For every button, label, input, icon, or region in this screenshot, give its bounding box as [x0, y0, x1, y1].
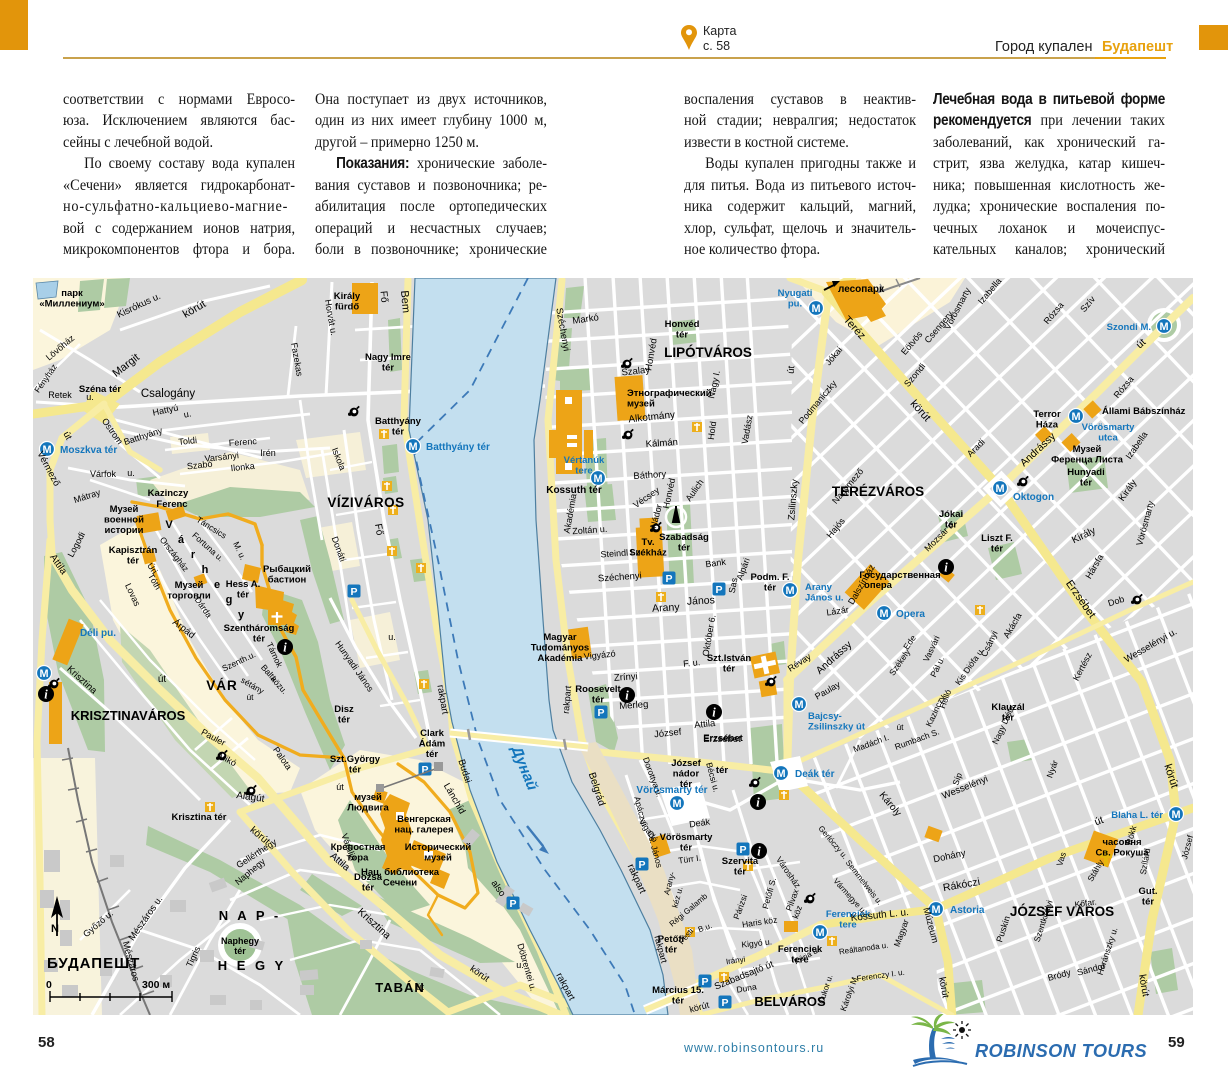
svg-text:музей: музей: [424, 853, 452, 864]
svg-text:Hunyadi: Hunyadi: [1067, 467, 1104, 478]
svg-text:Bajcsy-: Bajcsy-: [808, 711, 842, 722]
svg-text:Szt.István: Szt.István: [707, 653, 752, 664]
svg-text:JÓZSEF VÁROS: JÓZSEF VÁROS: [1010, 904, 1114, 919]
svg-text:Opera: Opera: [896, 609, 925, 620]
svg-text:M: M: [815, 927, 824, 939]
svg-text:0: 0: [46, 979, 52, 991]
svg-text:Gut.: Gut.: [1139, 886, 1158, 897]
svg-text:«Миллениум»: «Миллениум»: [39, 299, 104, 310]
svg-text:Terror: Terror: [1033, 409, 1061, 420]
svg-text:M: M: [39, 668, 48, 680]
svg-text:tér: tér: [382, 363, 394, 374]
svg-text:e: e: [214, 579, 220, 591]
svg-text:tér: tér: [253, 634, 265, 645]
svg-text:Vörösmarty tér: Vörösmarty tér: [636, 785, 707, 796]
svg-text:Báthory: Báthory: [633, 469, 667, 482]
svg-text:út: út: [246, 692, 254, 702]
svg-text:Сечени: Сечени: [383, 878, 417, 889]
svg-text:Attila: Attila: [694, 718, 717, 731]
svg-text:Háza: Háza: [1036, 420, 1059, 431]
svg-text:Astoria: Astoria: [950, 905, 985, 916]
svg-text:M: M: [1071, 411, 1080, 423]
svg-text:Szentháromság: Szentháromság: [224, 623, 295, 634]
svg-text:u.: u.: [127, 468, 135, 478]
svg-text:Retek: Retek: [48, 390, 72, 400]
svg-text:M: M: [879, 608, 888, 620]
svg-text:VÁR: VÁR: [206, 678, 238, 693]
svg-text:János u.: János u.: [805, 593, 844, 604]
svg-text:Ádám: Ádám: [419, 739, 445, 750]
svg-text:Kazinczy: Kazinczy: [148, 488, 189, 499]
svg-text:музей: музей: [354, 792, 382, 803]
svg-text:M: M: [1171, 809, 1180, 821]
svg-text:P: P: [721, 997, 728, 1009]
svg-text:P: P: [715, 584, 722, 596]
svg-text:P: P: [597, 707, 604, 719]
svg-text:Szt.György: Szt.György: [330, 754, 381, 765]
svg-text:N A P -: N A P -: [219, 908, 281, 923]
svg-text:V: V: [165, 519, 173, 531]
svg-text:Magyar: Magyar: [543, 632, 577, 643]
svg-text:Blaha L. tér: Blaha L. tér: [1111, 810, 1163, 821]
svg-text:út: út: [158, 674, 167, 685]
svg-text:Csalogány: Csalogány: [141, 388, 196, 400]
svg-text:y: y: [238, 609, 245, 621]
svg-text:Ferenc: Ferenc: [228, 436, 257, 448]
svg-text:János: János: [687, 594, 716, 607]
svg-text:Állami Bábszínház: Állami Bábszínház: [1102, 406, 1186, 417]
svg-text:истории: истории: [105, 525, 144, 536]
svg-text:tere: tere: [575, 466, 592, 477]
svg-text:Podm. F.: Podm. F.: [750, 572, 789, 583]
svg-text:Ференца Листа: Ференца Листа: [1051, 455, 1124, 466]
svg-text:Этнографический: Этнографический: [627, 388, 712, 399]
svg-text:tér: tér: [592, 695, 604, 706]
svg-text:M: M: [995, 483, 1004, 495]
svg-text:út: út: [416, 982, 424, 993]
svg-text:M: M: [776, 768, 785, 780]
svg-text:Oktogon: Oktogon: [1013, 492, 1054, 503]
svg-text:Akadémia: Akadémia: [538, 653, 584, 664]
svg-text:tér: tér: [234, 946, 246, 956]
svg-text:pu.: pu.: [788, 299, 802, 310]
svg-text:tér: tér: [1142, 897, 1154, 908]
svg-text:á: á: [178, 534, 185, 546]
svg-text:Исторический: Исторический: [405, 842, 472, 853]
svg-text:út: út: [786, 365, 798, 374]
svg-text:Nyugati: Nyugati: [778, 288, 813, 299]
svg-text:бастион: бастион: [268, 575, 307, 586]
svg-text:F. u.: F. u.: [683, 657, 701, 669]
svg-text:u.: u.: [516, 960, 524, 970]
svg-text:Disz: Disz: [334, 704, 354, 715]
svg-text:музей: музей: [627, 399, 655, 410]
svg-text:Moszkva tér: Moszkva tér: [60, 445, 117, 456]
svg-text:Mérleg: Mérleg: [619, 699, 649, 712]
svg-text:i: i: [756, 796, 760, 810]
svg-text:BELVÁROS: BELVÁROS: [754, 994, 826, 1009]
svg-text:KRISZTINAVÁROS: KRISZTINAVÁROS: [71, 708, 186, 723]
svg-text:M: M: [672, 798, 681, 810]
svg-text:utca: utca: [1098, 433, 1118, 444]
svg-text:Zsilinszky út: Zsilinszky út: [808, 722, 866, 733]
svg-text:Крепостная: Крепостная: [331, 842, 386, 853]
svg-text:ROBINSON TOURS: ROBINSON TOURS: [975, 1041, 1147, 1061]
svg-text:Tv.: Tv.: [641, 537, 654, 548]
svg-text:Fő: Fő: [378, 290, 390, 303]
svg-text:нац. галерея: нац. галерея: [394, 825, 453, 836]
svg-text:tér: tér: [349, 765, 361, 776]
svg-text:Vörösmarty: Vörösmarty: [1082, 422, 1136, 433]
svg-text:nádor: nádor: [673, 769, 700, 780]
svg-text:Венгерская: Венгерская: [397, 814, 451, 825]
svg-text:i: i: [944, 561, 948, 575]
svg-text:Clark: Clark: [420, 728, 444, 739]
svg-text:Людвига: Людвига: [347, 803, 389, 814]
svg-text:P: P: [638, 859, 645, 871]
svg-text:Honvéd: Honvéd: [665, 319, 700, 330]
svg-text:Krisztina tér: Krisztina tér: [172, 812, 227, 823]
svg-text:Várfok: Várfok: [90, 469, 117, 479]
svg-text:Музей: Музей: [1073, 444, 1102, 455]
svg-text:Zrínyi: Zrínyi: [614, 671, 638, 684]
svg-text:tér: tér: [362, 883, 374, 894]
svg-text:военной: военной: [104, 515, 144, 526]
svg-text:tér: tér: [680, 843, 692, 854]
svg-text:út: út: [336, 782, 344, 792]
svg-text:Fő: Fő: [372, 523, 385, 537]
svg-text:Roosevelt: Roosevelt: [575, 684, 621, 695]
svg-text:парк: парк: [61, 288, 83, 299]
svg-text:Музей: Музей: [110, 504, 139, 515]
svg-text:i: i: [283, 641, 287, 655]
svg-text:Dózsa: Dózsa: [354, 872, 383, 883]
svg-text:Ferenc: Ferenc: [156, 499, 187, 510]
svg-text:M: M: [593, 473, 602, 485]
svg-text:tér: tér: [680, 779, 692, 790]
svg-text:u.: u.: [388, 632, 396, 642]
svg-text:u.: u.: [86, 392, 94, 402]
svg-text:tér: tér: [1080, 478, 1092, 489]
svg-text:tér: tér: [392, 427, 404, 438]
svg-text:tér: tér: [672, 996, 684, 1007]
svg-text:g: g: [226, 594, 233, 606]
svg-text:Deák tér: Deák tér: [795, 769, 835, 780]
svg-text:P: P: [739, 844, 746, 856]
svg-text:tér: tér: [991, 544, 1003, 555]
svg-text:лесопарк: лесопарк: [838, 284, 885, 295]
svg-text:Szervita: Szervita: [722, 856, 759, 867]
svg-text:József: József: [671, 758, 701, 769]
svg-text:Музей: Музей: [175, 580, 204, 591]
svg-text:tér: tér: [237, 590, 249, 601]
svg-text:Szabadság: Szabadság: [659, 532, 709, 543]
svg-text:Déli pu.: Déli pu.: [80, 628, 116, 639]
svg-text:LIPÓTVÁROS: LIPÓTVÁROS: [664, 345, 752, 360]
svg-text:M: M: [811, 303, 820, 315]
svg-text:Batthyány tér: Batthyány tér: [426, 442, 490, 453]
svg-text:Batthyány: Batthyány: [375, 416, 422, 427]
svg-text:M: M: [408, 441, 417, 453]
svg-text:i: i: [44, 688, 48, 702]
svg-text:Kálmán: Kálmán: [645, 437, 678, 450]
svg-text:Liszt F.: Liszt F.: [981, 533, 1013, 544]
svg-text:Bem: Bem: [398, 290, 412, 314]
svg-text:Arany: Arany: [652, 601, 681, 614]
svg-text:Szondi M.: Szondi M.: [1107, 322, 1151, 333]
svg-text:P: P: [509, 898, 516, 910]
svg-text:VÍZIVÁROS: VÍZIVÁROS: [327, 495, 404, 510]
svg-text:tér: tér: [676, 330, 688, 341]
svg-text:P: P: [350, 586, 357, 598]
svg-text:H E G Y: H E G Y: [218, 958, 286, 973]
svg-text:N: N: [51, 923, 59, 935]
svg-text:Vértanúk: Vértanúk: [564, 455, 605, 466]
svg-text:Vörösmarty: Vörösmarty: [660, 832, 714, 843]
svg-text:tér: tér: [723, 664, 735, 675]
svg-text:Március 15.: Március 15.: [652, 985, 704, 996]
svg-text:tér: tér: [127, 556, 139, 567]
svg-text:h: h: [202, 564, 209, 576]
svg-text:Arany: Arany: [805, 582, 833, 593]
svg-text:300 м: 300 м: [142, 979, 170, 991]
svg-text:Irén: Irén: [260, 448, 276, 458]
svg-text:Naphegy: Naphegy: [221, 936, 259, 946]
svg-text:tér: tér: [764, 583, 776, 594]
svg-text:Рыбацкий: Рыбацкий: [263, 564, 311, 575]
svg-text:Hess A.: Hess A.: [226, 579, 261, 590]
svg-text:fürdő: fürdő: [335, 302, 359, 313]
svg-text:Erzsébet: Erzsébet: [703, 734, 741, 745]
svg-text:P: P: [665, 573, 672, 585]
svg-text:M: M: [794, 699, 803, 711]
svg-text:Tudományos: Tudományos: [531, 643, 589, 654]
svg-text:Nagy Imre: Nagy Imre: [365, 352, 411, 363]
svg-text:tér: tér: [678, 543, 690, 554]
svg-text:tér: tér: [734, 867, 746, 878]
svg-text:tér: tér: [426, 749, 438, 760]
svg-text:Toldi: Toldi: [178, 435, 197, 447]
svg-text:часовня: часовня: [1102, 837, 1141, 848]
svg-text:út: út: [896, 722, 904, 732]
svg-text:Király: Király: [334, 291, 361, 302]
svg-text:r: r: [191, 549, 196, 561]
svg-text:tér: tér: [338, 715, 350, 726]
svg-text:Jókai: Jókai: [939, 509, 963, 520]
svg-text:M: M: [785, 585, 794, 597]
svg-text:Kapisztrán: Kapisztrán: [109, 545, 158, 556]
svg-text:M: M: [1159, 321, 1168, 333]
